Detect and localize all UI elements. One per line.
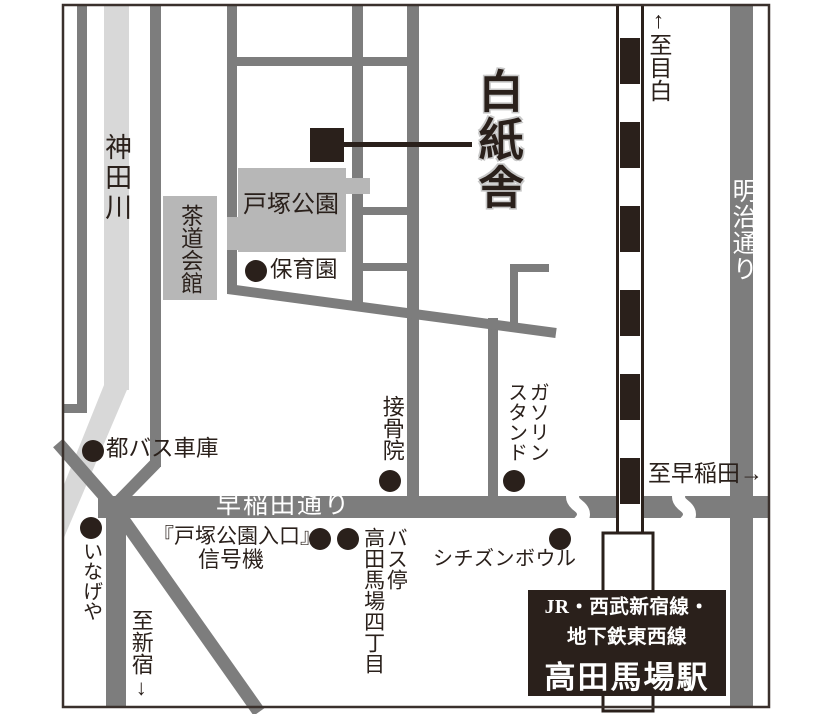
waseda-dori-label: 早稲田通り: [216, 492, 351, 519]
road-gas-street: [488, 318, 498, 496]
road-top-horizontal: [227, 57, 419, 66]
kanda-river-label: 神田川: [101, 133, 130, 223]
road-diagonal-middle: [228, 289, 556, 333]
callout-line: [344, 142, 472, 147]
to-mejiro-label: ↑至目白: [645, 8, 670, 102]
station-lines-2: 地下鉄東西線: [528, 620, 726, 649]
road-L-horizontal: [510, 264, 549, 272]
signal-dot: [309, 528, 331, 550]
bus-stop-dot: [337, 528, 359, 550]
bus-stop-line1: バス停: [385, 527, 408, 674]
signal-line2: 信号機: [153, 548, 309, 572]
road-clinic-street: [407, 5, 419, 496]
gas-station-label: ガソリン スタンド: [504, 382, 547, 462]
tea-hall-label: 茶道会館: [178, 204, 202, 294]
destination-marker: [310, 128, 344, 162]
inageya-dot: [80, 517, 102, 539]
signal-line1: 『戸塚公園入口』: [153, 525, 309, 548]
station-lines-1: JR・西武新宿線・: [528, 590, 726, 619]
meiji-dori-road: [730, 5, 753, 708]
bus-stop-label: バス停 高田馬場四丁目: [362, 527, 407, 674]
bus-stop-line2: 高田馬場四丁目: [362, 527, 385, 674]
gas-station-line1: ガソリン: [526, 382, 548, 462]
road-L-vertical: [510, 264, 518, 328]
to-waseda-label: 至早稲田→: [648, 462, 763, 487]
waseda-dori-road: [98, 496, 770, 518]
to-shinjuku-label: 至新宿↓: [129, 609, 153, 700]
nursery-label: 保育園: [270, 258, 338, 282]
gas-station-dot: [503, 470, 525, 492]
bus-depot-dot: [82, 440, 104, 462]
signal-label: 『戸塚公園入口』 信号機: [153, 525, 309, 571]
road-park-east: [352, 5, 363, 308]
station-name: 高田馬場駅: [528, 652, 726, 697]
road-teahall-east: [227, 5, 237, 294]
road-stub-lower: [360, 263, 412, 271]
road-west-stub: [63, 404, 79, 413]
break-mark-right: [679, 488, 690, 524]
access-map: 神田川 茶道会館 戸塚公園 保育園 白紙舎 ↑至目白 明治通り 接骨院 ガソリン…: [0, 0, 828, 714]
road-shinjuku-south: [106, 505, 126, 708]
road-stub-upper: [360, 207, 414, 215]
meiji-dori-label: 明治通り: [729, 178, 756, 282]
hakushisha-title: 白紙舎: [472, 68, 521, 212]
citizen-bowl-dot: [549, 528, 571, 550]
road-west-vertical: [77, 5, 87, 413]
clinic-label: 接骨院: [380, 395, 404, 461]
totsuka-park-label: 戸塚公園: [243, 193, 339, 219]
inageya-label: いなげや: [79, 541, 101, 621]
nursery-dot: [245, 260, 267, 282]
station-label-box: JR・西武新宿線・ 地下鉄東西線 高田馬場駅: [528, 590, 726, 696]
road-river-east: [150, 5, 161, 467]
break-mark-left: [573, 488, 584, 524]
bus-depot-label: 都バス車庫: [106, 437, 219, 461]
clinic-dot: [379, 470, 401, 492]
citizen-bowl-label: シチズンボウル: [433, 549, 577, 571]
gas-station-line2: スタンド: [504, 382, 526, 462]
